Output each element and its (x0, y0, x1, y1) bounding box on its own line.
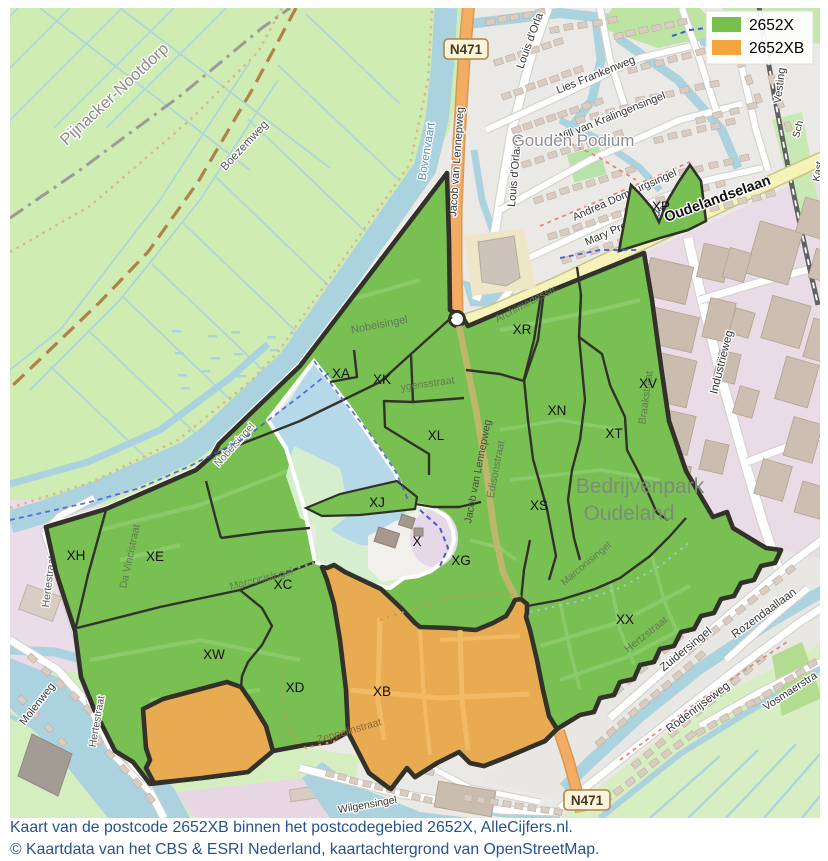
svg-text:Kast: Kast (811, 161, 825, 183)
svg-text:XE: XE (146, 549, 164, 564)
svg-text:XL: XL (428, 428, 445, 443)
svg-text:2652XB: 2652XB (749, 40, 804, 57)
svg-text:XG: XG (451, 553, 471, 568)
svg-text:XS: XS (530, 498, 548, 513)
svg-text:XH: XH (67, 548, 86, 563)
svg-text:Oudeland: Oudeland (583, 502, 674, 525)
svg-text:XC: XC (274, 577, 293, 592)
svg-text:XT: XT (605, 426, 622, 441)
svg-text:XV: XV (639, 376, 657, 391)
svg-text:XW: XW (203, 647, 225, 662)
svg-text:XX: XX (616, 612, 634, 627)
svg-text:N471: N471 (571, 793, 604, 808)
svg-text:N471: N471 (450, 42, 483, 57)
svg-text:XK: XK (373, 372, 391, 387)
svg-text:XR: XR (513, 322, 532, 337)
svg-text:XA: XA (332, 366, 350, 381)
svg-text:2652X: 2652X (749, 17, 794, 34)
svg-text:XP: XP (652, 199, 670, 214)
svg-text:Bedrijvenpark: Bedrijvenpark (576, 475, 705, 498)
svg-text:XD: XD (286, 680, 305, 695)
svg-text:Gouden Podium: Gouden Podium (512, 131, 635, 150)
svg-text:XN: XN (548, 403, 567, 418)
svg-text:XB: XB (373, 684, 391, 699)
svg-text:X: X (412, 534, 421, 549)
svg-text:XJ: XJ (369, 495, 385, 510)
